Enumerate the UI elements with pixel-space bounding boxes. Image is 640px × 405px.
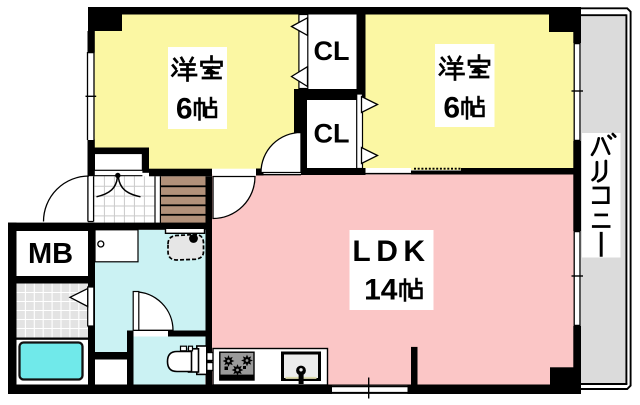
svg-text:6: 6 <box>176 93 193 126</box>
svg-text:MB: MB <box>28 238 73 270</box>
svg-text:CL: CL <box>314 36 350 66</box>
svg-text:14: 14 <box>364 274 398 307</box>
svg-text:LDK: LDK <box>352 235 430 268</box>
svg-text:CL: CL <box>314 119 350 149</box>
svg-text:6: 6 <box>443 92 460 125</box>
